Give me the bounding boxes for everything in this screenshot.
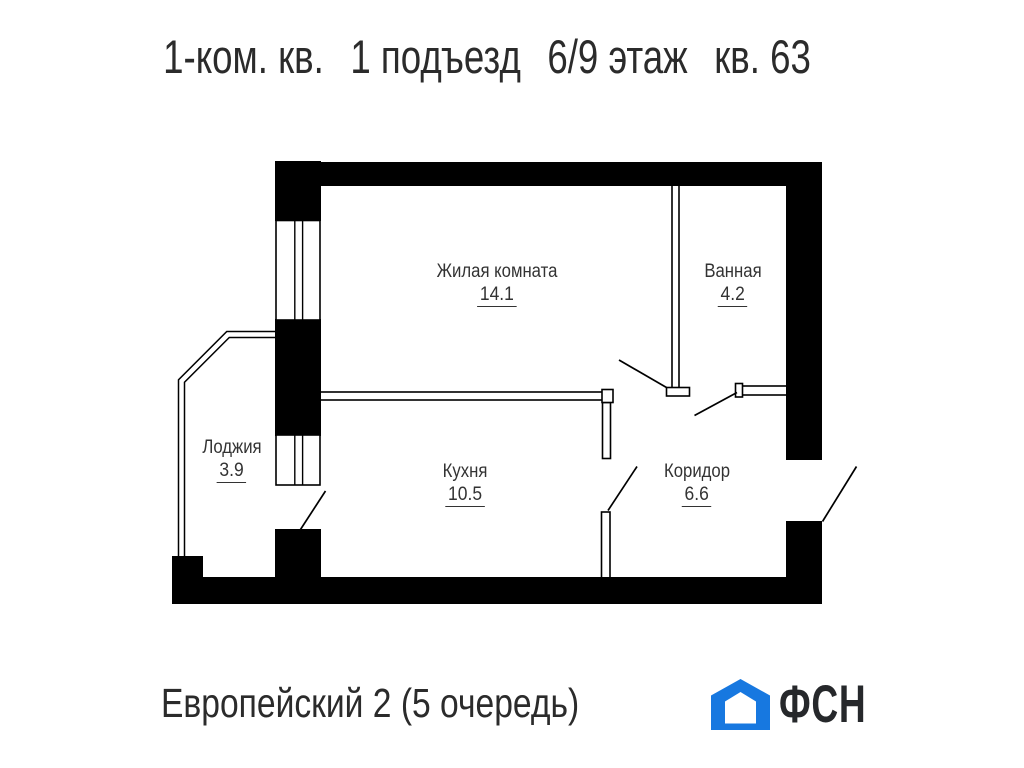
room-area: 14.1 [477, 285, 517, 307]
wall-bottom [172, 577, 822, 604]
room-area: 6.6 [682, 485, 712, 507]
wall-living-bathroom [672, 184, 679, 388]
title-entrance: 1 подъезд [350, 33, 520, 80]
room-name: Кухня [443, 462, 488, 482]
floor-plan-drawing [0, 0, 1024, 768]
door-bathroom [695, 393, 738, 416]
jamb-kitchen-wall-end [602, 390, 613, 403]
window-kitchen [276, 435, 320, 485]
room-area: 4.2 [718, 285, 748, 307]
room-label-loggia: Лоджия 3.9 [198, 438, 265, 483]
room-label-kitchen: Кухня 10.5 [440, 462, 491, 507]
jamb-bathroom-door [736, 384, 743, 398]
jamb-living-door [667, 388, 690, 397]
room-name: Лоджия [202, 438, 261, 458]
project-name: Европейский 2 (5 очередь) [161, 683, 579, 724]
house-icon [711, 679, 770, 730]
room-name: Коридор [664, 462, 730, 482]
door-living-room [619, 360, 667, 388]
door-entrance [823, 467, 857, 522]
title-floor: 6/9 этаж [547, 33, 687, 80]
title-apartment-number: кв. 63 [714, 33, 811, 80]
title-apartment-type: 1-ком. кв. [163, 33, 324, 80]
room-name: Жилая комната [437, 262, 558, 282]
wall-left-upper [275, 161, 321, 221]
page-title: 1-ком. кв. 1 подъезд 6/9 этаж кв. 63 [163, 33, 811, 80]
window-living-room [276, 221, 320, 321]
room-label-living-room: Жилая комната 14.1 [428, 262, 565, 307]
logo-text: ФСН [779, 679, 866, 730]
wall-living-kitchen [319, 392, 603, 400]
door-kitchen [608, 467, 637, 511]
room-area: 3.9 [217, 461, 247, 483]
floor-plan-page: 1-ком. кв. 1 подъезд 6/9 этаж кв. 63 Жил… [0, 0, 1024, 768]
wall-right-upper [786, 162, 822, 460]
developer-logo: ФСН [711, 679, 904, 730]
wall-kitchen-corridor-lower [602, 512, 611, 578]
wall-left-middle [275, 319, 321, 436]
door-loggia [300, 491, 326, 531]
wall-kitchen-corridor-upper [603, 403, 611, 459]
outer-walls [172, 161, 822, 604]
room-area: 10.5 [445, 485, 485, 507]
room-name: Ванная [704, 262, 761, 282]
room-label-corridor: Коридор 6.6 [659, 462, 734, 507]
room-label-bathroom: Ванная 4.2 [700, 262, 765, 307]
wall-loggia-pier [172, 556, 203, 577]
wall-top [275, 162, 822, 186]
wall-bathroom-corridor [737, 386, 788, 395]
